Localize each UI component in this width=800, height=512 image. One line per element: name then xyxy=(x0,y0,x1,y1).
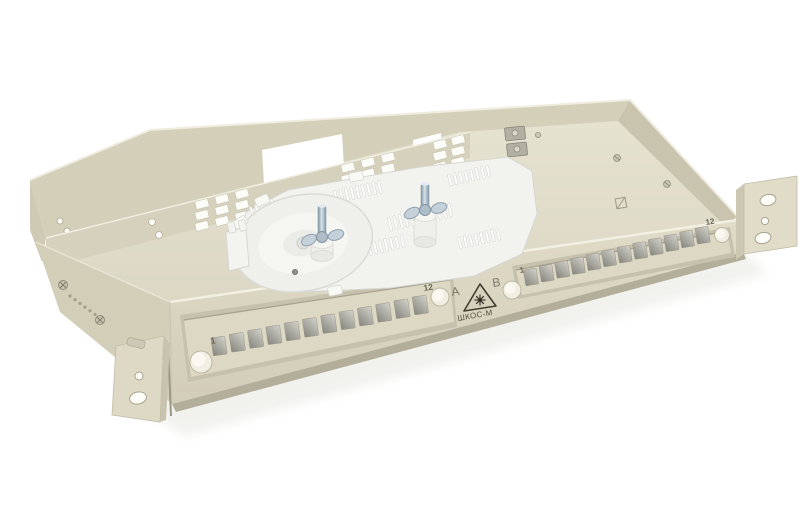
clamp-screw xyxy=(512,130,518,136)
thumbscrew xyxy=(503,281,521,299)
left-wall-screw xyxy=(96,316,105,325)
rack-ear-right xyxy=(736,176,797,260)
vent-hole xyxy=(88,309,91,312)
adapter-port-cutout xyxy=(412,295,428,315)
product-photo-fiber-distribution-box: 1 12 1 12 A B xyxy=(0,0,800,512)
vent-hole xyxy=(68,294,71,297)
mounting-hole xyxy=(761,217,768,224)
photo-canvas: 1 12 1 12 A B xyxy=(0,0,800,512)
vent-hole xyxy=(93,313,96,316)
clamp-screw xyxy=(514,146,520,152)
adapter-port-cutout xyxy=(321,314,337,334)
adapter-port-cutout xyxy=(376,303,392,323)
ear-plate xyxy=(744,176,797,254)
adapter-port-cutout xyxy=(617,245,632,263)
rail-hole xyxy=(149,219,156,226)
vent-hole xyxy=(73,298,76,301)
adapter-port-cutout xyxy=(664,234,679,252)
adapter-port-cutout xyxy=(357,306,373,326)
adapter-port-cutout xyxy=(247,329,263,349)
ear-fold xyxy=(736,184,744,260)
adapter-port-cutout xyxy=(695,226,710,244)
back-wall-hole xyxy=(57,218,63,224)
thumbscrew xyxy=(431,288,449,306)
adapter-port-cutout xyxy=(302,317,318,337)
adapter-port-cutout xyxy=(586,253,601,271)
adapter-port-cutout xyxy=(555,260,570,278)
adapter-port-cutout xyxy=(570,257,585,275)
rail-hole xyxy=(156,232,163,239)
adapter-port-cutout xyxy=(633,241,648,259)
mounting-hole xyxy=(135,372,143,380)
adapter-port-cutout xyxy=(648,238,663,256)
adapter-port-cutout xyxy=(679,230,694,248)
left-wall-screw xyxy=(59,281,68,290)
vent-hole xyxy=(83,306,86,309)
thumbscrew xyxy=(190,351,212,373)
adapter-port-cutout xyxy=(394,299,410,319)
adapter-port-cutout xyxy=(266,325,282,345)
thumbscrew xyxy=(715,228,730,243)
rack-ear-left xyxy=(112,336,171,422)
adapter-port-cutout xyxy=(523,268,538,286)
vent-hole xyxy=(78,302,81,305)
rear-screw xyxy=(535,132,540,137)
adapter-port-cutout xyxy=(339,310,355,330)
adapter-port-cutout xyxy=(284,321,300,341)
cassette-screw xyxy=(292,269,297,274)
adapter-port-cutout xyxy=(539,264,554,282)
adapter-port-cutout xyxy=(601,249,616,267)
adapter-port-cutout xyxy=(229,332,245,352)
